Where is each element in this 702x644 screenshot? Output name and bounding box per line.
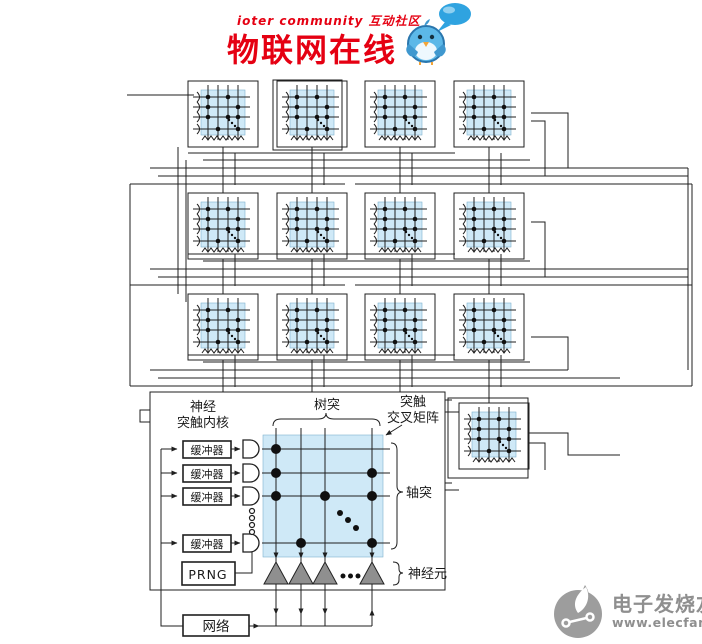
crossbar-core-12 xyxy=(454,294,524,360)
label-axon: 轴突 xyxy=(406,485,432,501)
buffer-label: 缓冲器 xyxy=(191,537,224,551)
label-dendrite: 树突 xyxy=(314,397,340,413)
label-crossbar-1: 突触 xyxy=(400,394,426,410)
prng-box: PRNG xyxy=(182,562,235,585)
crossbar-core-3 xyxy=(365,81,435,147)
crossbar-core-1 xyxy=(188,81,258,147)
axon-brace xyxy=(391,443,403,549)
crossbar-core-7 xyxy=(365,193,435,259)
crossbar-core-6 xyxy=(277,193,347,259)
crossbar-core-8 xyxy=(454,193,524,259)
label-neuron: 神经元 xyxy=(408,567,447,582)
buffer-3: 缓冲器 xyxy=(183,488,231,505)
neuron-brace xyxy=(393,562,403,585)
crossbar-pointer-arrow xyxy=(386,425,402,435)
detail-view: 神经 突触内核 树突 突触 交叉矩阵 xyxy=(140,392,447,636)
crossbar-core-13 xyxy=(459,403,529,469)
prng-label: PRNG xyxy=(188,567,227,582)
watermark-name: 电子发烧友 xyxy=(612,593,702,615)
label-core-title-2: 突触内核 xyxy=(177,415,229,431)
label-crossbar-2: 交叉矩阵 xyxy=(387,410,439,426)
crossbar-core-11 xyxy=(365,294,435,360)
core-grid xyxy=(188,81,529,469)
dendrite-brace xyxy=(273,413,380,426)
network-label: 网络 xyxy=(203,619,230,635)
detail-port xyxy=(140,410,150,422)
label-core-title-1: 神经 xyxy=(190,400,216,415)
watermark-url: www.elecfans.com xyxy=(612,615,702,630)
buffer-1: 缓冲器 xyxy=(183,441,231,458)
buffer-label: 缓冲器 xyxy=(191,490,224,504)
buffer-2: 缓冲器 xyxy=(183,465,231,482)
neuron-triangles xyxy=(264,562,384,584)
crossbar-core-9 xyxy=(188,294,258,360)
buffer-4: 缓冲器 xyxy=(183,535,231,552)
architecture-diagram: 神经 突触内核 树突 突触 交叉矩阵 xyxy=(0,0,702,644)
network-box: 网络 xyxy=(183,615,249,636)
crossbar-core-10 xyxy=(277,294,347,360)
elecfans-logo-icon xyxy=(552,583,606,639)
buffer-label: 缓冲器 xyxy=(191,443,224,457)
crossbar-core-2 xyxy=(277,81,347,147)
watermark: 电子发烧友 www.elecfans.com xyxy=(552,583,702,639)
page: ioter community 互动社区 物联网在线 xyxy=(0,0,702,644)
buffer-label: 缓冲器 xyxy=(191,467,224,481)
axon-driver-gates xyxy=(243,440,259,552)
crossbar-core-5 xyxy=(188,193,258,259)
crossbar-core-4 xyxy=(454,81,524,147)
